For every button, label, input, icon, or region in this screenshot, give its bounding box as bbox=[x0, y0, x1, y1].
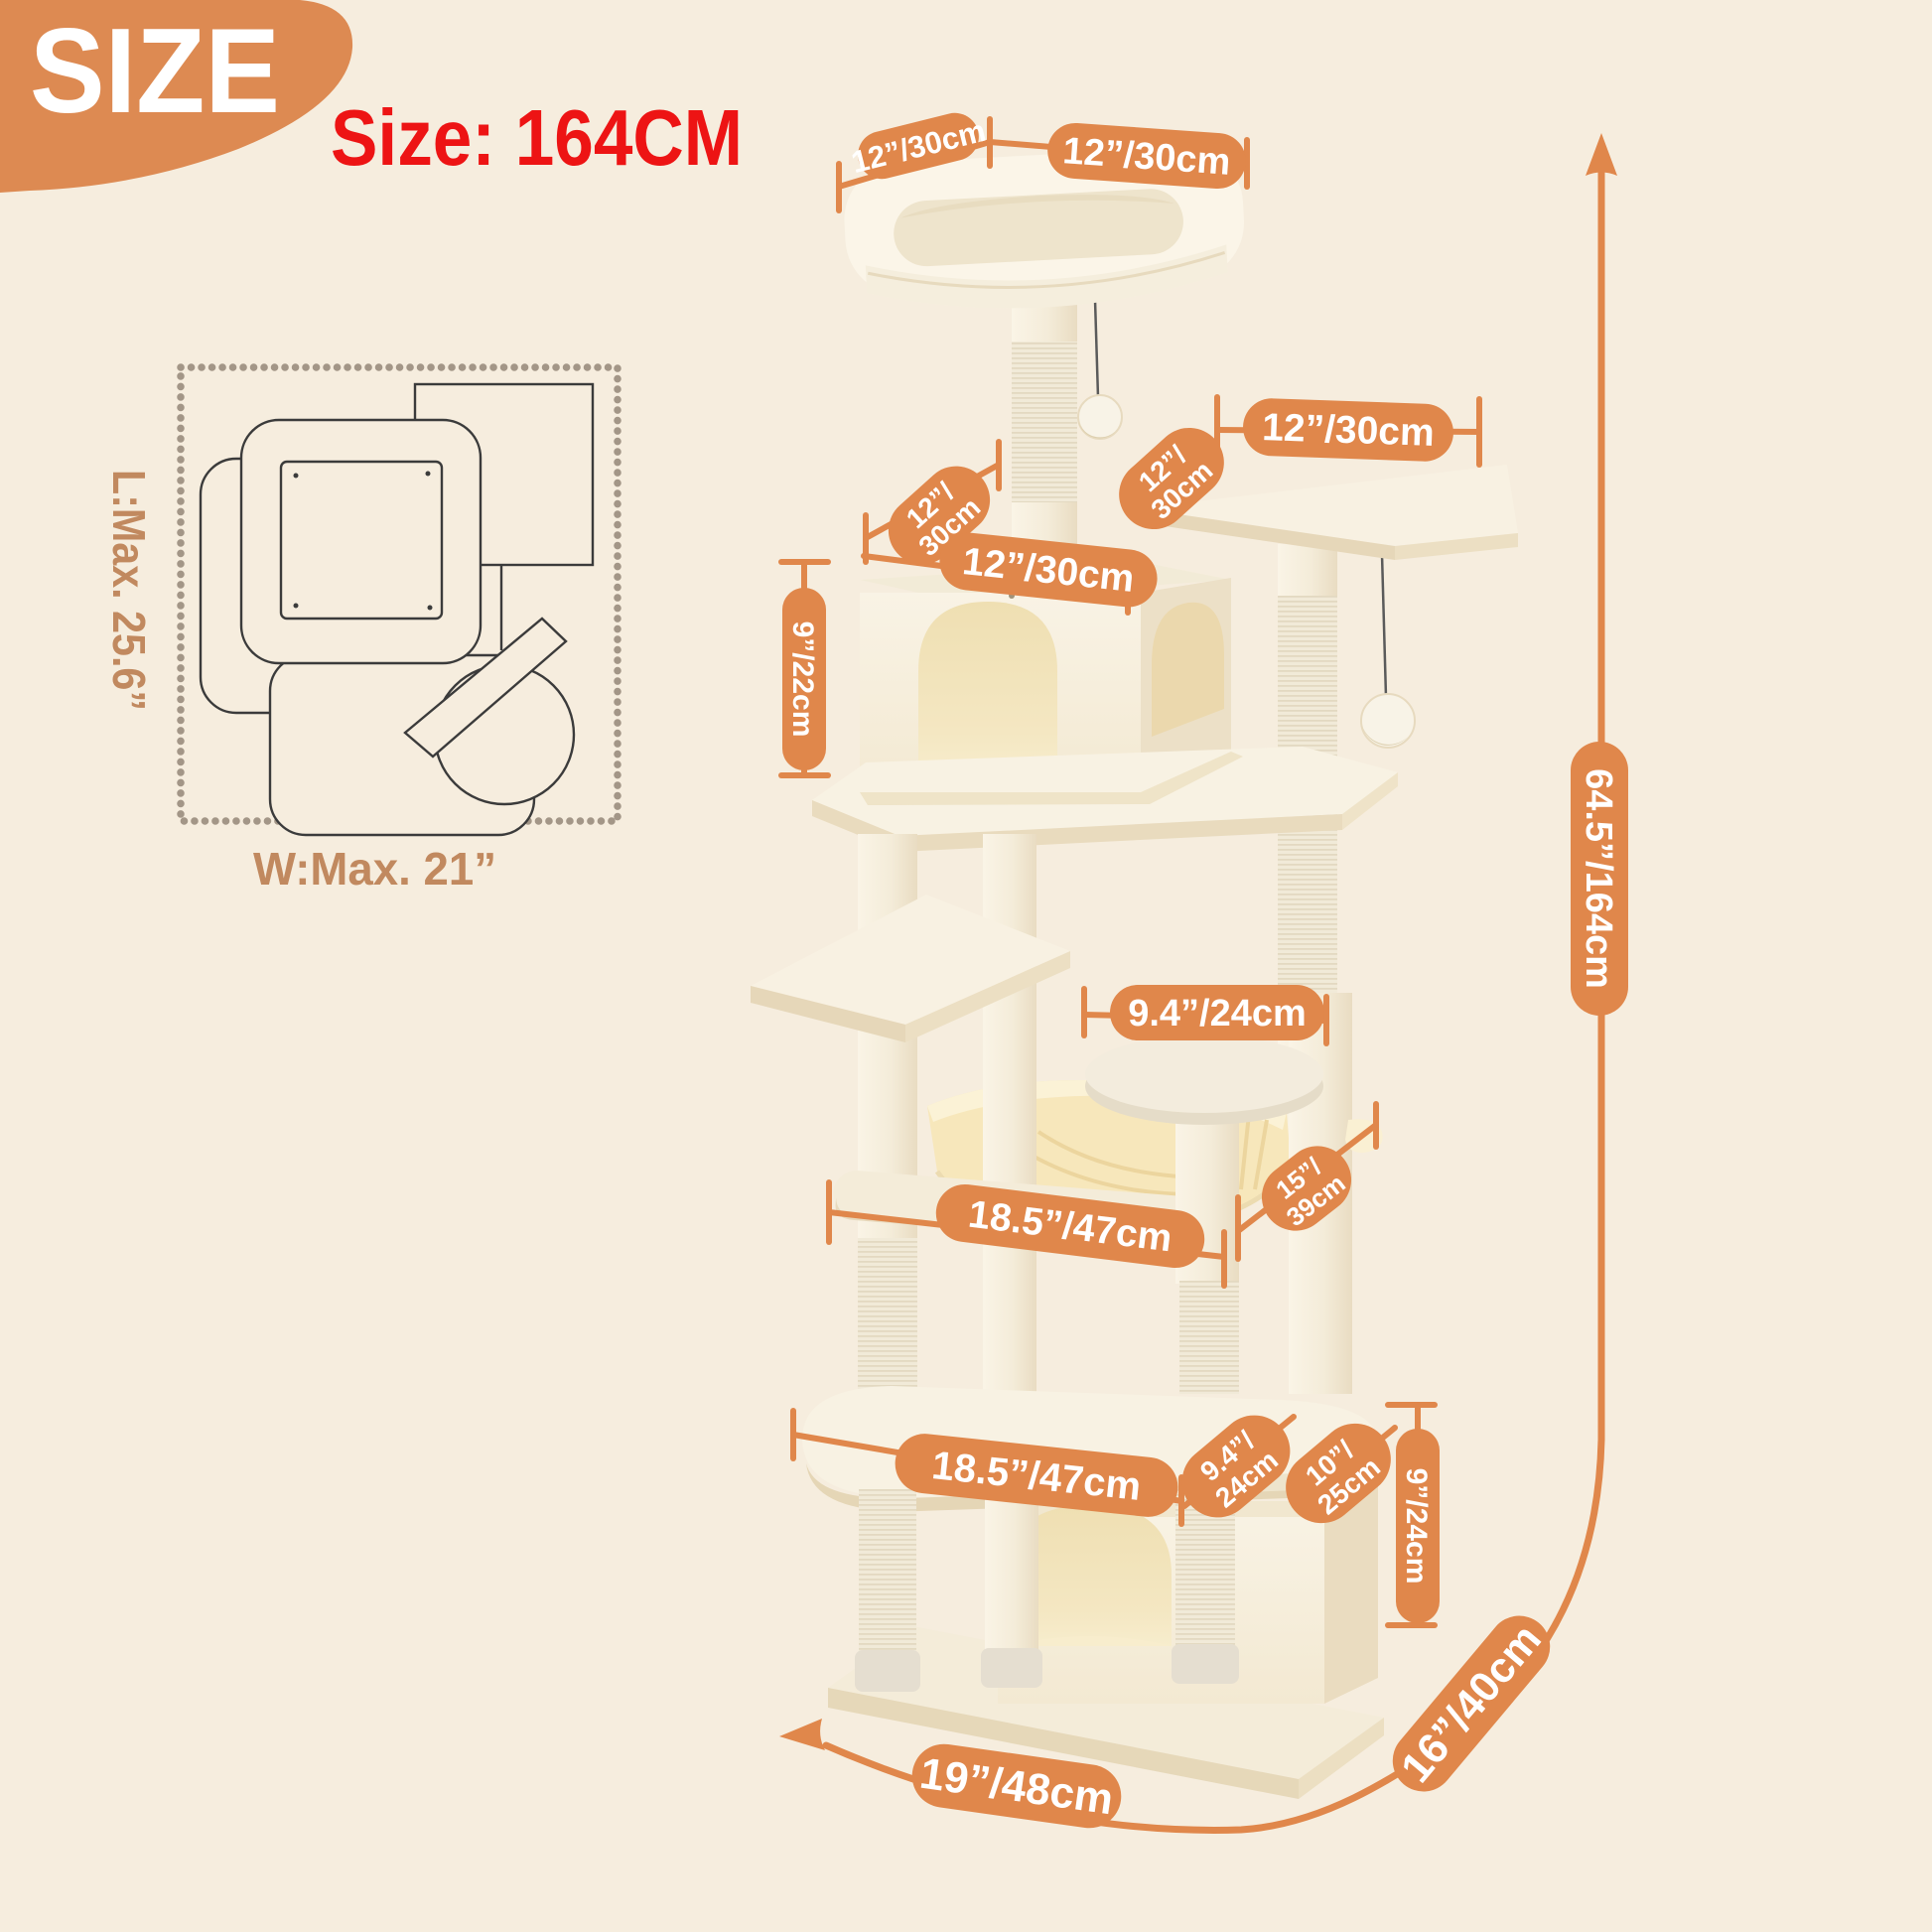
svg-text:W:Max. 21”: W:Max. 21” bbox=[253, 843, 496, 895]
svg-text:L:Max. 25.6”: L:Max. 25.6” bbox=[103, 470, 155, 711]
svg-text:64.5”/164cm: 64.5”/164cm bbox=[1578, 768, 1619, 989]
svg-text:Size: 164CM: Size: 164CM bbox=[331, 93, 743, 182]
svg-text:12”/30cm: 12”/30cm bbox=[1262, 406, 1436, 455]
svg-text:9”/24cm: 9”/24cm bbox=[1400, 1468, 1433, 1585]
svg-text:9”/22cm: 9”/22cm bbox=[786, 621, 819, 738]
svg-text:SIZE: SIZE bbox=[30, 3, 280, 138]
svg-text:9.4”/24cm: 9.4”/24cm bbox=[1128, 993, 1307, 1035]
